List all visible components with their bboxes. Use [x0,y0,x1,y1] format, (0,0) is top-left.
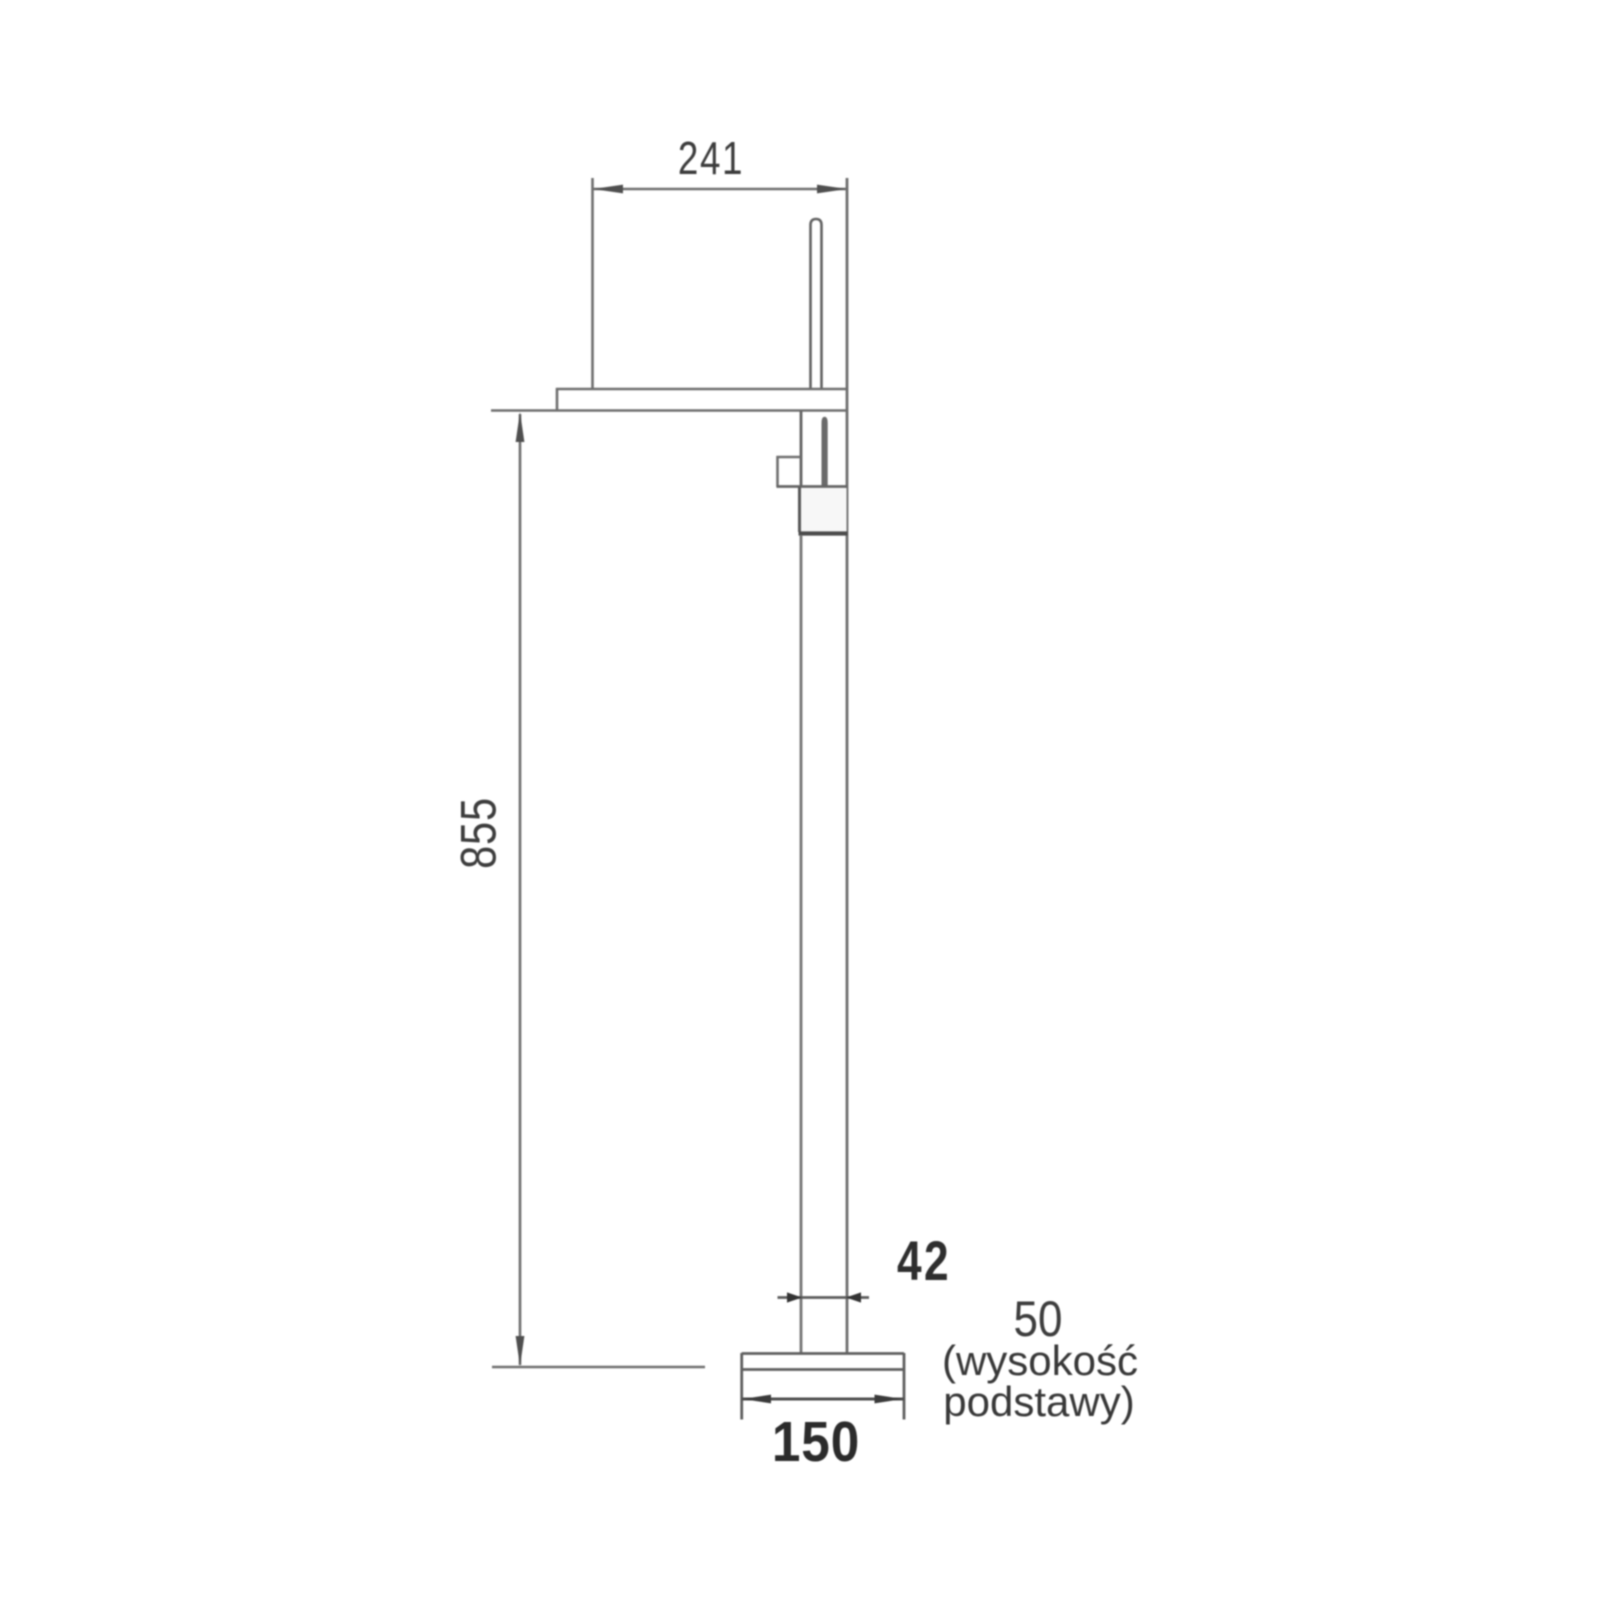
svg-text:855: 855 [450,797,507,869]
svg-text:150: 150 [772,1411,860,1474]
svg-text:42: 42 [897,1229,951,1292]
svg-text:(wysokość: (wysokość [942,1337,1138,1384]
svg-text:241: 241 [678,132,744,184]
svg-text:podstawy): podstawy) [943,1378,1134,1425]
